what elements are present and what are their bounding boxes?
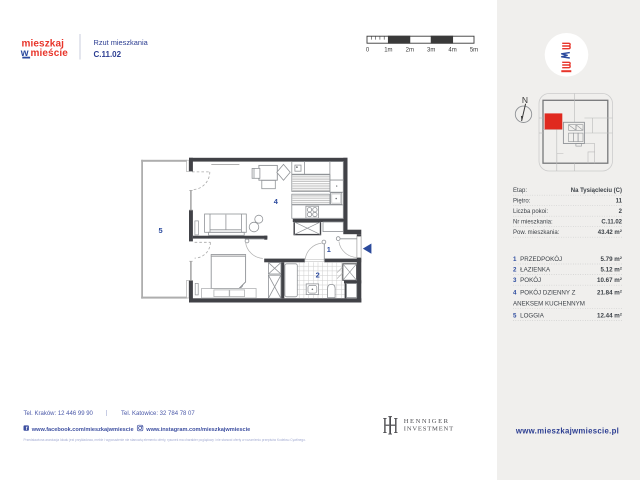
svg-text:1: 1 — [327, 245, 331, 254]
svg-text:www.facebook.com/mieszkajwmies: www.facebook.com/mieszkajwmiescie — [31, 427, 134, 433]
svg-text:5: 5 — [158, 226, 162, 235]
svg-text:Tel. Kraków: 12 446 99 90: Tel. Kraków: 12 446 99 90 — [24, 411, 94, 417]
svg-text:N: N — [522, 95, 528, 105]
svg-text:INVESTMENT: INVESTMENT — [404, 425, 454, 432]
svg-text:HENNIGER: HENNIGER — [404, 418, 450, 425]
svg-text:C.11.02: C.11.02 — [601, 220, 622, 226]
svg-text:3m: 3m — [427, 48, 435, 54]
svg-text:2m: 2m — [406, 48, 414, 54]
svg-text:5.12 m2: 5.12 m2 — [601, 266, 623, 274]
svg-text:Rzut mieszkania: Rzut mieszkania — [94, 38, 149, 47]
svg-text:Etap:: Etap: — [513, 188, 527, 194]
svg-text:11: 11 — [616, 199, 623, 205]
svg-text:2 ŁAZIENKA: 2 ŁAZIENKA — [513, 267, 551, 274]
svg-text:43.42 m2: 43.42 m2 — [598, 228, 623, 236]
svg-text:Na Tysiącleciu (C): Na Tysiącleciu (C) — [571, 188, 622, 194]
svg-text:1 PRZEDPOKÓJ: 1 PRZEDPOKÓJ — [513, 256, 562, 263]
svg-text:Pow. mieszkania:: Pow. mieszkania: — [513, 230, 560, 236]
svg-text:5.79 m2: 5.79 m2 — [601, 255, 623, 263]
svg-text:Nr mieszkania:: Nr mieszkania: — [513, 220, 553, 226]
svg-text:ANEKSEM KUCHENNYM: ANEKSEM KUCHENNYM — [513, 300, 585, 307]
svg-text:www.instagram.com/mieszkajwmie: www.instagram.com/mieszkajwmiescie — [145, 427, 250, 433]
svg-text:Przedstawiona aranżacja lokalu: Przedstawiona aranżacja lokalu jest przy… — [24, 438, 306, 442]
svg-text:4 POKÓJ DZIENNY Z: 4 POKÓJ DZIENNY Z — [513, 289, 576, 296]
svg-text:21.84 m2: 21.84 m2 — [597, 288, 623, 296]
svg-text:5m: 5m — [470, 48, 478, 54]
svg-text:mieście: mieście — [31, 48, 69, 59]
svg-text:Piętro:: Piętro: — [513, 199, 531, 205]
svg-text:12.44 m2: 12.44 m2 — [597, 311, 623, 319]
svg-text:10.67 m2: 10.67 m2 — [597, 276, 623, 284]
svg-text:1m: 1m — [384, 48, 392, 54]
svg-text:Liczba pokoi:: Liczba pokoi: — [513, 209, 548, 215]
svg-text:C.11.02: C.11.02 — [94, 50, 122, 59]
svg-text:Tel. Katowice: 32 784 78 07: Tel. Katowice: 32 784 78 07 — [121, 411, 195, 417]
svg-text:2: 2 — [316, 271, 320, 280]
svg-text:5 LOGGIA: 5 LOGGIA — [513, 312, 545, 319]
svg-text:www.mieszkajwmiescie.pl: www.mieszkajwmiescie.pl — [515, 427, 619, 436]
svg-text:4m: 4m — [448, 48, 456, 54]
